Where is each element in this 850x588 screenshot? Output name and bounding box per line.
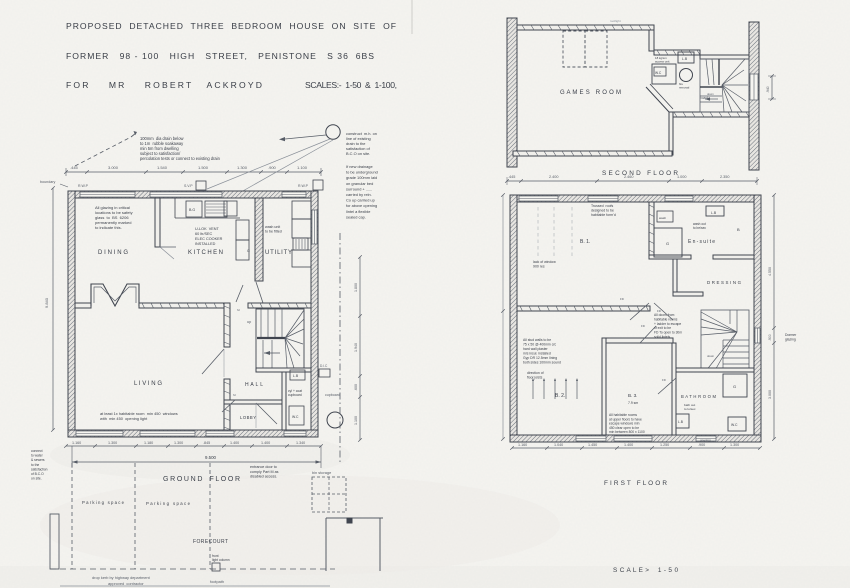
- svg-text:up: up: [247, 320, 251, 324]
- svg-text:.445: .445: [508, 175, 515, 179]
- svg-text:ELEC COOKER: ELEC COOKER: [195, 237, 223, 241]
- svg-text:1.940: 1.940: [354, 343, 358, 352]
- svg-text:R.W.P: R.W.P: [78, 184, 89, 188]
- svg-text:1.300: 1.300: [108, 441, 117, 445]
- svg-text:with min 450 opening light: with min 450 opening light: [100, 416, 148, 421]
- svg-text:LOBBY: LOBBY: [240, 415, 256, 420]
- svg-text:to water: to water: [31, 454, 44, 458]
- svg-text:habitable rooms: habitable rooms: [654, 317, 678, 321]
- svg-text:of exit to be: of exit to be: [654, 326, 671, 330]
- svg-text:If new drainage: If new drainage: [346, 164, 373, 169]
- svg-text:1.800: 1.800: [354, 283, 358, 292]
- svg-text:glazing: glazing: [785, 337, 796, 341]
- svg-text:2.460: 2.460: [624, 175, 634, 179]
- svg-text:opening: opening: [700, 438, 711, 442]
- svg-text:.900: .900: [698, 443, 705, 447]
- svg-text:cupboard: cupboard: [325, 393, 340, 397]
- svg-text:G: G: [733, 384, 736, 389]
- svg-text:9.500: 9.500: [205, 455, 217, 460]
- svg-text:entrance door to: entrance door to: [250, 465, 277, 469]
- svg-text:INSTALLED: INSTALLED: [195, 242, 216, 246]
- svg-text:B.C.O on site.: B.C.O on site.: [346, 151, 370, 156]
- svg-text:1.300: 1.300: [237, 165, 248, 170]
- svg-text:U-LOK VENT: U-LOK VENT: [195, 227, 220, 231]
- svg-text:rooflight: rooflight: [610, 19, 621, 23]
- svg-text:L.B: L.B: [678, 420, 684, 424]
- svg-text:both sides 100mm sound: both sides 100mm sound: [523, 361, 561, 365]
- svg-text:to be fitted: to be fitted: [265, 230, 282, 234]
- svg-text:designed to be: designed to be: [591, 208, 614, 212]
- svg-text:B. 1.: B. 1.: [580, 239, 590, 245]
- svg-text:1.160: 1.160: [72, 441, 81, 445]
- svg-text:hard wall plaster: hard wall plaster: [523, 347, 549, 351]
- svg-text:sealed cap.: sealed cap.: [346, 214, 366, 219]
- svg-text:& sewers: & sewers: [31, 458, 45, 462]
- svg-text:3.000: 3.000: [108, 165, 119, 170]
- svg-text:G: G: [666, 241, 669, 246]
- svg-text:1.250: 1.250: [660, 443, 669, 447]
- svg-text:B: B: [737, 227, 740, 232]
- svg-text:S.V.P: S.V.P: [184, 184, 193, 188]
- svg-text:1.180: 1.180: [144, 441, 153, 445]
- svg-text:wash: wash: [659, 216, 666, 220]
- svg-text:F O R E C O U R T: F O R E C O U R T: [193, 539, 228, 545]
- svg-text:SCALES:- 1-50 & 1-100,: SCALES:- 1-50 & 1-100,: [305, 80, 397, 90]
- svg-text:S E C O N D F L O O R: S E C O N D F L O O R: [602, 170, 678, 177]
- svg-text:down: down: [707, 354, 715, 358]
- svg-text:B.G: B.G: [189, 208, 195, 212]
- svg-text:.445: .445: [70, 165, 79, 170]
- svg-text:for above opening: for above opening: [346, 203, 377, 208]
- svg-text:W.C: W.C: [655, 71, 662, 75]
- svg-text:W.C: W.C: [731, 423, 738, 427]
- svg-text:cupboard: cupboard: [288, 393, 302, 397]
- svg-text:1.000: 1.000: [677, 175, 687, 179]
- svg-text:G: G: [247, 249, 250, 253]
- svg-text:F I R S T F L O O R: F I R S T F L O O R: [604, 480, 667, 487]
- svg-text:FOR MR ROBERT ACKROYD: FOR MR ROBERT ACKROYD: [66, 80, 262, 90]
- svg-text:1.300: 1.300: [174, 441, 183, 445]
- svg-text:1.100: 1.100: [354, 416, 358, 425]
- svg-text:to be underground: to be underground: [346, 170, 378, 175]
- svg-text:FD: FD: [662, 378, 666, 382]
- svg-text:Dormer: Dormer: [785, 333, 797, 337]
- svg-text:to be/sec: to be/sec: [693, 226, 706, 230]
- svg-text:B. 3.: B. 3.: [628, 393, 637, 398]
- svg-text:disabled access.: disabled access.: [250, 475, 277, 479]
- svg-text:+ ladder to escape: + ladder to escape: [654, 322, 681, 326]
- svg-text:satisfaction: satisfaction: [31, 467, 48, 471]
- svg-text:of B.C.O: of B.C.O: [31, 472, 44, 476]
- svg-text:D R E S S I N G: D R E S S I N G: [707, 280, 742, 285]
- svg-text:FORMER 98 - 100 HIGH STR: FORMER 98 - 100 HIGH STREET, PENISTONE S…: [66, 51, 374, 61]
- svg-text:All stud walls to be: All stud walls to be: [523, 338, 551, 342]
- svg-text:2.350: 2.350: [720, 175, 730, 179]
- svg-text:direction of: direction of: [527, 371, 544, 375]
- svg-text:.940: .940: [766, 86, 770, 93]
- svg-text:bin storage: bin storage: [312, 470, 331, 475]
- svg-text:grade 100mm laid: grade 100mm laid: [346, 175, 377, 180]
- svg-text:W.C: W.C: [292, 415, 299, 419]
- svg-text:FD: FD: [641, 324, 645, 328]
- svg-text:G A M E S R O O M: G A M E S R O O M: [560, 90, 621, 96]
- svg-text:1.160: 1.160: [518, 443, 527, 447]
- svg-text:.900: .900: [268, 165, 277, 170]
- svg-text:to lo/sec: to lo/sec: [684, 407, 696, 411]
- svg-text:connect: connect: [31, 449, 43, 453]
- svg-text:drop kerb by highway departmen: drop kerb by highway department: [92, 575, 151, 580]
- svg-text:1.450: 1.450: [588, 443, 597, 447]
- svg-text:fd: fd: [233, 393, 236, 397]
- svg-text:footpath: footpath: [210, 579, 224, 584]
- svg-text:9.840: 9.840: [44, 297, 49, 308]
- svg-text:fd: fd: [237, 308, 240, 312]
- svg-text:Trussed roofs: Trussed roofs: [591, 204, 613, 208]
- svg-text:1.300: 1.300: [730, 443, 739, 447]
- svg-text:L I V I N G: L I V I N G: [134, 381, 162, 387]
- svg-text:on granular bed: on granular bed: [346, 181, 373, 186]
- svg-text:.845: .845: [203, 441, 210, 445]
- svg-text:B A T H R O O M: B A T H R O O M: [681, 394, 717, 399]
- svg-text:1.400: 1.400: [261, 441, 270, 445]
- svg-text:habitable form'd: habitable form'd: [591, 213, 616, 217]
- svg-text:lack of window: lack of window: [533, 260, 556, 264]
- svg-text:comply Part M as: comply Part M as: [250, 470, 279, 474]
- svg-text:75 x 50 @ 400mm c/c: 75 x 50 @ 400mm c/c: [523, 343, 556, 347]
- svg-text:approved contractor: approved contractor: [108, 581, 144, 586]
- svg-text:carried by reln.: carried by reln.: [346, 192, 372, 197]
- svg-text:light column: light column: [212, 558, 230, 562]
- svg-text:D.I.C: D.I.C: [320, 364, 328, 368]
- svg-text:removal: removal: [679, 86, 690, 90]
- svg-text:1.100: 1.100: [297, 165, 308, 170]
- svg-text:to the: to the: [31, 463, 39, 467]
- svg-text:1.040: 1.040: [554, 443, 563, 447]
- svg-text:1.500: 1.500: [198, 165, 209, 170]
- svg-text:L.B: L.B: [682, 57, 688, 61]
- svg-text:FD To open to 30m: FD To open to 30m: [654, 331, 682, 335]
- svg-text:G R O U N D F L O O R: G R O U N D F L O O R: [163, 476, 240, 483]
- svg-text:900 res: 900 res: [533, 265, 545, 269]
- svg-text:B. 2.: B. 2.: [555, 393, 565, 399]
- svg-text:to indicate this.: to indicate this.: [95, 225, 122, 230]
- svg-text:Co up carried up: Co up carried up: [346, 198, 375, 203]
- svg-text:60 ltr/SEC: 60 ltr/SEC: [195, 232, 213, 236]
- svg-text:S C A L E > 1 - 5 0: S C A L E > 1 - 5 0: [613, 567, 678, 574]
- svg-text:H A L L: H A L L: [245, 382, 263, 388]
- svg-text:L.B: L.B: [293, 374, 299, 378]
- svg-text:.900: .900: [768, 334, 772, 341]
- svg-text:lintel a flexible: lintel a flexible: [346, 209, 370, 214]
- svg-text:solid lintels.: solid lintels.: [654, 335, 671, 339]
- svg-text:1.400: 1.400: [624, 443, 633, 447]
- svg-text:1.540: 1.540: [157, 165, 168, 170]
- svg-text:.600: .600: [354, 384, 358, 391]
- svg-text:1.340: 1.340: [296, 441, 305, 445]
- svg-text:D I N I N G: D I N I N G: [98, 250, 128, 256]
- svg-text:R.W.P: R.W.P: [298, 184, 309, 188]
- svg-text:2.400: 2.400: [549, 175, 559, 179]
- svg-text:1.400: 1.400: [230, 441, 239, 445]
- svg-text:7.9 sm: 7.9 sm: [628, 401, 638, 405]
- svg-text:Gyp DR 12.5mm lining: Gyp DR 12.5mm lining: [523, 356, 557, 360]
- svg-text:4.550: 4.550: [768, 267, 772, 276]
- svg-text:floor joists: floor joists: [527, 375, 543, 379]
- svg-text:down: down: [707, 92, 714, 96]
- svg-text:min between 800 x 1100: min between 800 x 1100: [609, 430, 645, 434]
- svg-text:FD: FD: [620, 297, 624, 301]
- svg-text:on site.: on site.: [31, 477, 42, 481]
- svg-text:PROPOSED DETACHED THREE BED: PROPOSED DETACHED THREE BEDROOM HOUSE ON…: [66, 21, 396, 31]
- svg-text:K I T C H E N: K I T C H E N: [188, 250, 223, 256]
- svg-text:percolation tests or connect t: percolation tests or connect to existing…: [140, 156, 221, 161]
- svg-text:m/s insul. installed: m/s insul. installed: [523, 352, 551, 356]
- svg-text:Parking space: Parking space: [82, 500, 125, 505]
- svg-text:boundary: boundary: [40, 180, 56, 184]
- svg-text:3.000: 3.000: [768, 390, 772, 399]
- svg-text:wash unit: wash unit: [265, 225, 280, 229]
- svg-text:access unit: access unit: [655, 60, 670, 64]
- svg-text:L.B: L.B: [711, 211, 717, 215]
- svg-text:All doors from: All doors from: [654, 313, 675, 317]
- svg-text:U T I L I T Y: U T I L I T Y: [265, 250, 292, 256]
- svg-text:surround + ......: surround + ......: [346, 186, 372, 191]
